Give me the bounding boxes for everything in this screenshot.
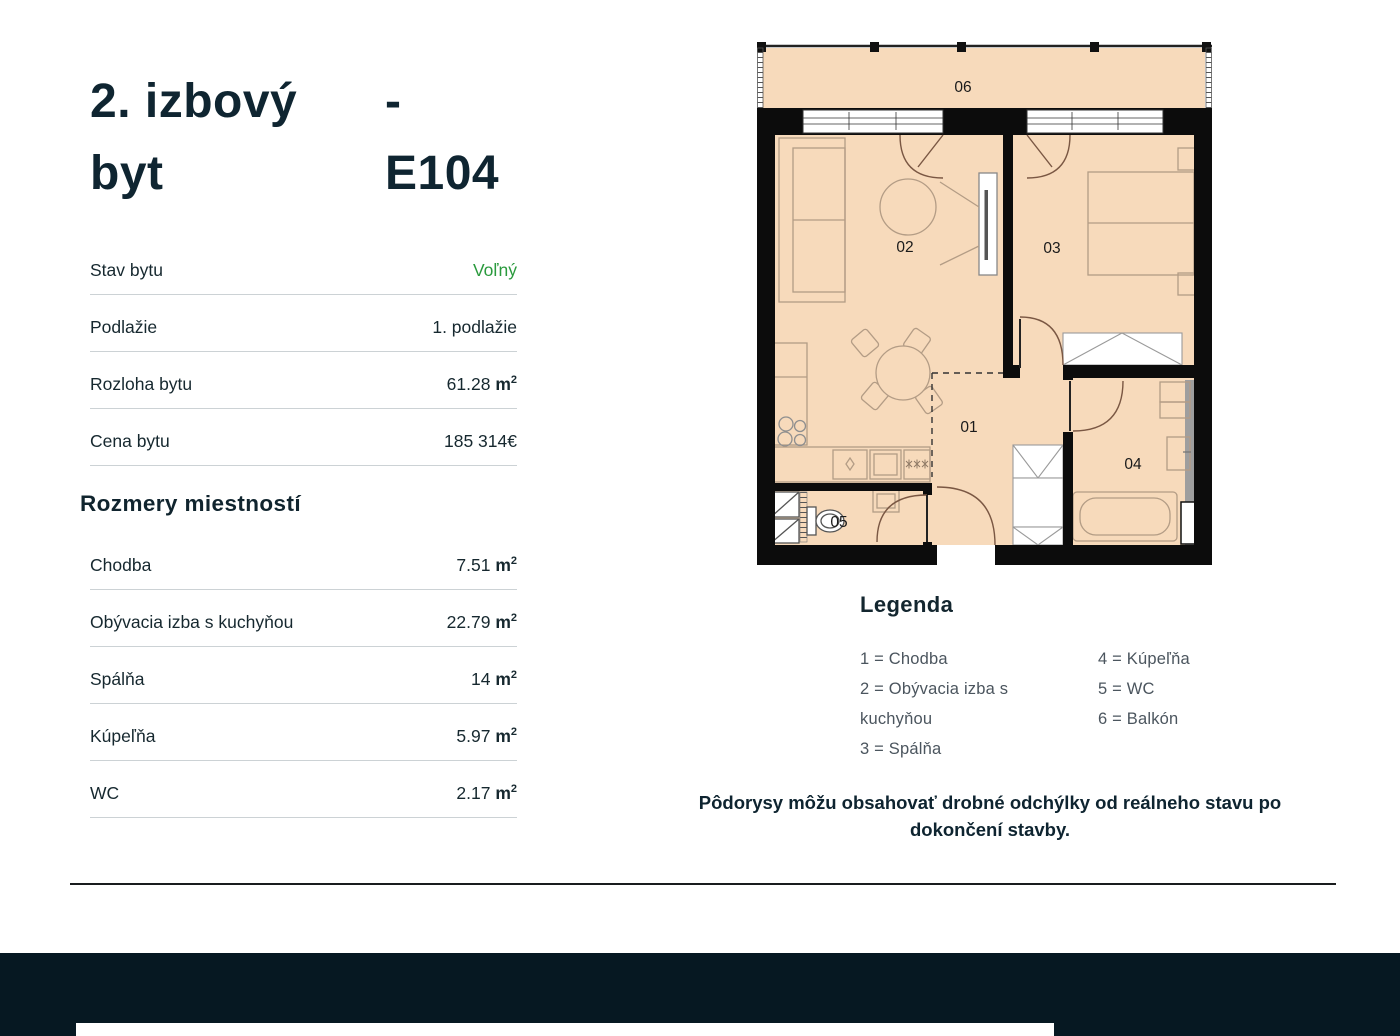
row-label: Obývacia izba s kuchyňou — [90, 612, 293, 633]
table-row: Obývacia izba s kuchyňou 22.79 m2 — [90, 590, 517, 647]
legend-item: 3 = Spálňa — [860, 734, 1085, 764]
room-label-05: 05 — [830, 514, 847, 531]
table-row: WC 2.17 m2 — [90, 761, 517, 818]
legend-column-right: 4 = Kúpeľňa5 = WC6 = Balkón — [1098, 644, 1336, 764]
apartment-details-table: Stav bytu Voľný Podlažie 1. podlažie Roz… — [90, 238, 517, 466]
page-title: 2. izbový byt - E104 — [90, 66, 517, 210]
row-value: 14 m2 — [471, 669, 517, 690]
legend-item: 6 = Balkón — [1098, 704, 1323, 734]
balcony — [757, 42, 1212, 108]
legend: Legenda 1 = Chodba2 = Obývacia izba s ku… — [860, 592, 1340, 764]
row-label: Spálňa — [90, 669, 145, 690]
legend-item: 2 = Obývacia izba s kuchyňou — [860, 674, 1085, 734]
room-label-01: 01 — [960, 419, 977, 436]
row-label: Podlažie — [90, 317, 157, 338]
row-value: 61.28 m2 — [447, 374, 517, 395]
row-value: 22.79 m2 — [447, 612, 517, 633]
room-label-06: 06 — [954, 79, 971, 96]
row-label: Stav bytu — [90, 260, 163, 281]
row-label: Chodba — [90, 555, 151, 576]
row-label: Kúpeľňa — [90, 726, 155, 747]
table-row: Stav bytu Voľný — [90, 238, 517, 295]
section-divider — [70, 883, 1336, 885]
row-value: Voľný — [473, 260, 517, 281]
floor-plan-image: 06 02 03 01 04 05 — [757, 40, 1212, 565]
legend-item: 1 = Chodba — [860, 644, 1085, 674]
legend-item: 4 = Kúpeľňa — [1098, 644, 1323, 674]
legend-heading: Legenda — [860, 592, 1340, 618]
table-row: Kúpeľňa 5.97 m2 — [90, 704, 517, 761]
legend-item: 5 = WC — [1098, 674, 1323, 704]
row-label: WC — [90, 783, 119, 804]
plan-disclaimer-note: Pôdorysy môžu obsahovať drobné odchýlky … — [660, 789, 1320, 843]
rooms-section-heading: Rozmery miestností — [80, 491, 301, 517]
room-label-02: 02 — [896, 239, 913, 256]
table-row: Podlažie 1. podlažie — [90, 295, 517, 352]
room-label-03: 03 — [1043, 240, 1060, 257]
apartment-type-title: 2. izbový byt — [90, 66, 340, 210]
apartment-detail-page: 2. izbový byt - E104 Stav bytu Voľný Pod… — [0, 0, 1400, 1036]
row-value: 5.97 m2 — [456, 726, 517, 747]
row-value: 7.51 m2 — [456, 555, 517, 576]
table-row: Spálňa 14 m2 — [90, 647, 517, 704]
row-value: 2.17 m2 — [456, 783, 517, 804]
table-row: Rozloha bytu 61.28 m2 — [90, 352, 517, 409]
row-label: Rozloha bytu — [90, 374, 192, 395]
row-label: Cena bytu — [90, 431, 170, 452]
legend-column-left: 1 = Chodba2 = Obývacia izba s kuchyňou3 … — [860, 644, 1098, 764]
footer-inner-bar — [76, 1023, 1054, 1036]
row-value: 185 314€ — [444, 431, 517, 452]
room-sizes-table: Chodba 7.51 m2 Obývacia izba s kuchyňou … — [90, 533, 517, 818]
table-row: Chodba 7.51 m2 — [90, 533, 517, 590]
table-row: Cena bytu 185 314€ — [90, 409, 517, 466]
apartment-code-title: - E104 — [385, 66, 517, 210]
room-label-04: 04 — [1124, 456, 1142, 473]
row-value: 1. podlažie — [432, 317, 517, 338]
